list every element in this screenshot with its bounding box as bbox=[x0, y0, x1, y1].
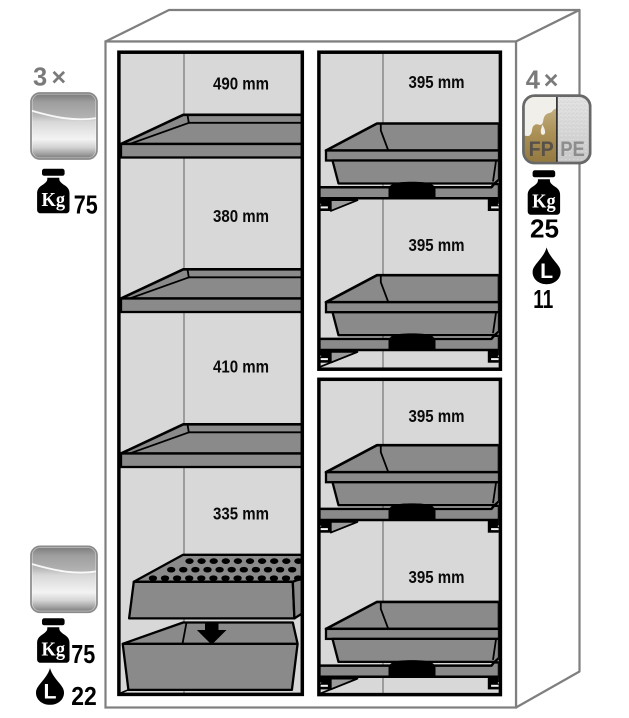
svg-text:490 mm: 490 mm bbox=[213, 74, 269, 94]
svg-text:75: 75 bbox=[71, 639, 95, 669]
svg-text:335 mm: 335 mm bbox=[213, 504, 269, 524]
svg-text:11: 11 bbox=[533, 284, 553, 314]
svg-text:395 mm: 395 mm bbox=[409, 235, 465, 255]
svg-text:25: 25 bbox=[530, 213, 559, 243]
svg-text:FP: FP bbox=[529, 137, 554, 161]
svg-text:395 mm: 395 mm bbox=[409, 567, 465, 587]
svg-text:4: 4 bbox=[526, 66, 541, 94]
svg-text:×: × bbox=[52, 64, 67, 92]
svg-text:395 mm: 395 mm bbox=[409, 406, 465, 426]
svg-text:395 mm: 395 mm bbox=[409, 72, 465, 92]
svg-text:×: × bbox=[544, 66, 559, 94]
svg-text:410 mm: 410 mm bbox=[213, 357, 269, 377]
svg-text:3: 3 bbox=[33, 64, 47, 92]
svg-text:75: 75 bbox=[74, 189, 98, 219]
svg-text:PE: PE bbox=[560, 137, 585, 161]
svg-text:22: 22 bbox=[71, 681, 97, 711]
svg-text:380 mm: 380 mm bbox=[213, 206, 269, 226]
